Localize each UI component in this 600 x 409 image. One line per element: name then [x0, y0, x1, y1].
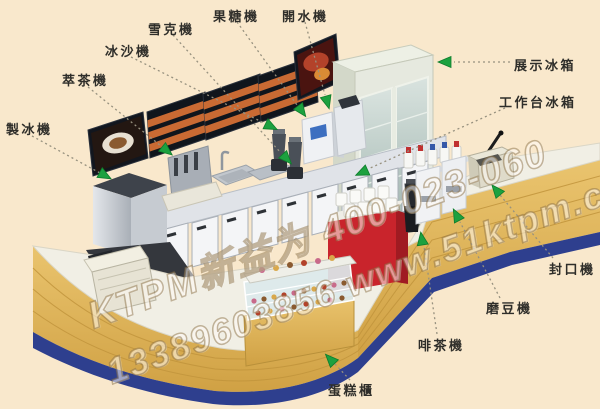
label-tea-extractor: 萃茶機	[62, 70, 109, 89]
label-sealing-machine: 封口機	[549, 259, 596, 278]
menu-board-photo-left	[88, 112, 148, 176]
label-ice-maker: 製冰機	[6, 119, 53, 138]
label-water-boiler: 開水機	[282, 6, 329, 25]
label-cake-display: 蛋糕櫃	[328, 380, 375, 399]
label-fructose-machine: 果糖機	[213, 6, 260, 25]
label-coffee-tea-machine: 啡茶機	[418, 335, 465, 354]
label-smoothie-machine: 冰沙機	[105, 41, 152, 60]
equipment-layout-diagram: KTPM新益为 400-023-060 13389603856 www.51kt…	[0, 0, 600, 409]
label-display-fridge: 展示冰箱	[514, 55, 576, 74]
menu-board-2	[147, 92, 208, 158]
label-shaker-machine: 雪克機	[148, 19, 195, 38]
label-worktable-fridge: 工作台冰箱	[499, 92, 577, 111]
menu-board-3	[203, 74, 263, 140]
label-bean-grinder: 磨豆機	[486, 298, 533, 317]
